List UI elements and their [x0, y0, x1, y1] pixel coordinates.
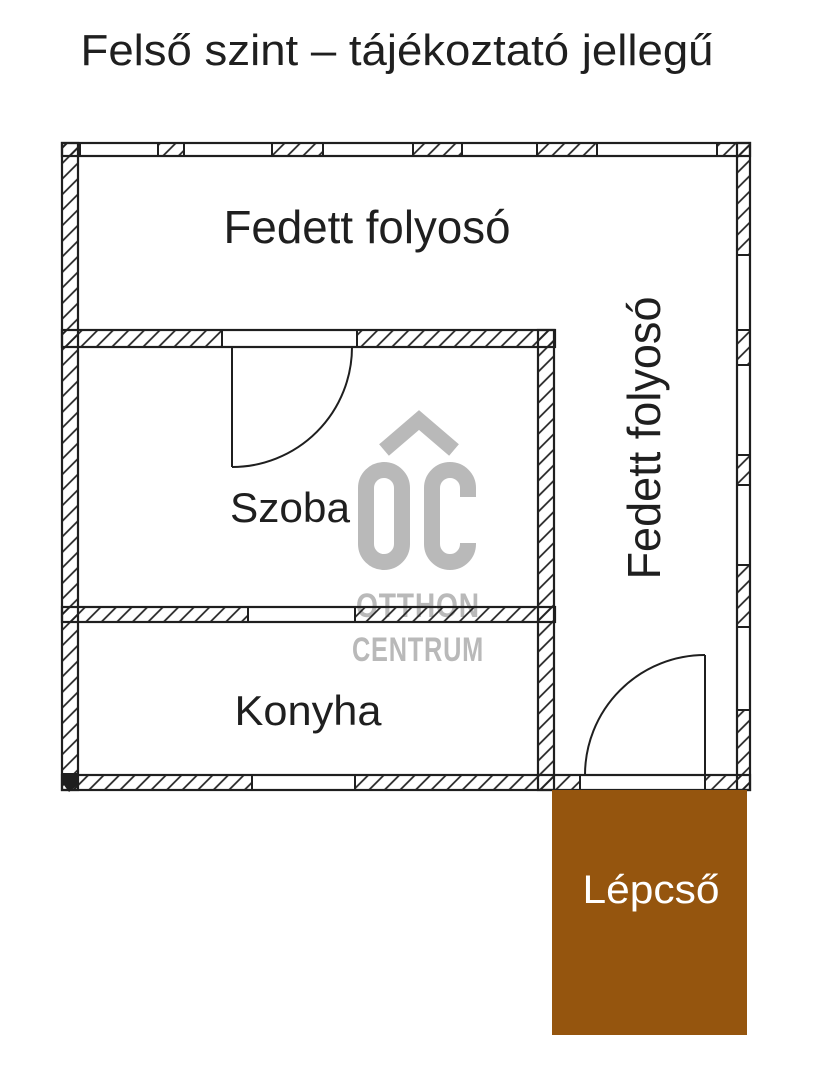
wall-segment	[737, 565, 750, 627]
room-label-konyha: Konyha	[235, 687, 383, 734]
room-label-stairs: Lépcső	[583, 868, 720, 912]
wall-segment	[357, 330, 555, 347]
wall-segment	[272, 143, 323, 156]
corridor-door-arc	[585, 655, 705, 775]
wall-segment	[737, 330, 750, 365]
wall-segment	[62, 143, 78, 790]
room-label-corridor-top: Fedett folyosó	[224, 201, 511, 253]
wall-segment	[538, 330, 554, 790]
watermark-monogram	[366, 470, 484, 562]
wall-segment	[737, 143, 750, 255]
wall-segment	[62, 330, 222, 347]
wall-segment	[737, 455, 750, 485]
room-label-szoba: Szoba	[230, 484, 351, 531]
wall-segment	[62, 775, 252, 790]
watermark-letter-c-gap	[452, 497, 484, 543]
wall-segment	[355, 775, 580, 790]
stairs: Lépcső	[552, 790, 747, 1035]
labels: Felső szint – tájékoztató jellegű Fedett…	[81, 26, 714, 734]
watermark: OTTHON CENTRUM	[352, 420, 484, 669]
watermark-line2: CENTRUM	[352, 631, 484, 669]
szoba-door-arc	[232, 347, 352, 467]
floor-plan: OTTHON CENTRUM	[0, 0, 839, 1080]
room-label-corridor-right: Fedett folyosó	[618, 297, 670, 580]
watermark-letter-o	[366, 470, 402, 562]
wall-segment	[537, 143, 597, 156]
wall-segment	[158, 143, 184, 156]
roof-chevron-icon	[384, 420, 454, 450]
wall-segment	[62, 607, 248, 622]
wall-segment	[413, 143, 462, 156]
wall-segment	[355, 607, 555, 622]
stairs-rect	[552, 790, 747, 1035]
wall-segment	[705, 775, 750, 790]
page-title: Felső szint – tájékoztató jellegű	[81, 26, 714, 75]
